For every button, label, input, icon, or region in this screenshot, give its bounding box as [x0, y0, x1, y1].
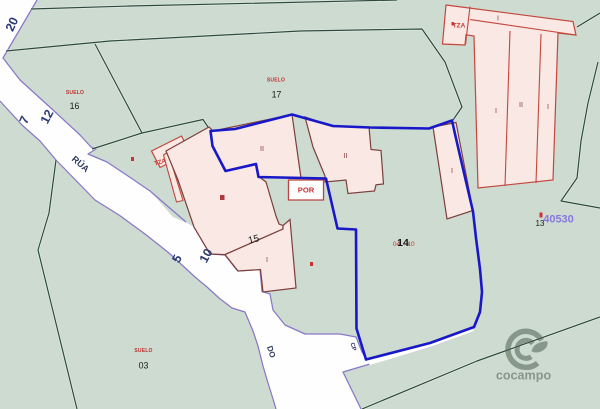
svg-text:17: 17 [272, 90, 282, 100]
svg-text:SUELO: SUELO [267, 78, 285, 84]
svg-text:II: II [344, 151, 348, 160]
svg-text:II: II [519, 100, 523, 109]
svg-text:POR: POR [298, 186, 315, 195]
svg-text:I: I [451, 166, 453, 175]
svg-text:16: 16 [70, 101, 80, 111]
svg-text:cocampo: cocampo [496, 369, 552, 383]
svg-text:SUELO: SUELO [66, 90, 84, 96]
svg-text:II: II [260, 144, 264, 153]
svg-text:I: I [266, 255, 268, 264]
svg-text:I: I [495, 106, 497, 115]
svg-text:SUELO: SUELO [134, 348, 152, 354]
svg-text:I: I [547, 102, 549, 111]
svg-text:40530: 40530 [543, 214, 574, 226]
svg-text:I: I [497, 14, 499, 23]
svg-text:TZA: TZA [453, 23, 466, 30]
svg-text:03: 03 [139, 361, 149, 371]
svg-text:14: 14 [397, 237, 409, 249]
